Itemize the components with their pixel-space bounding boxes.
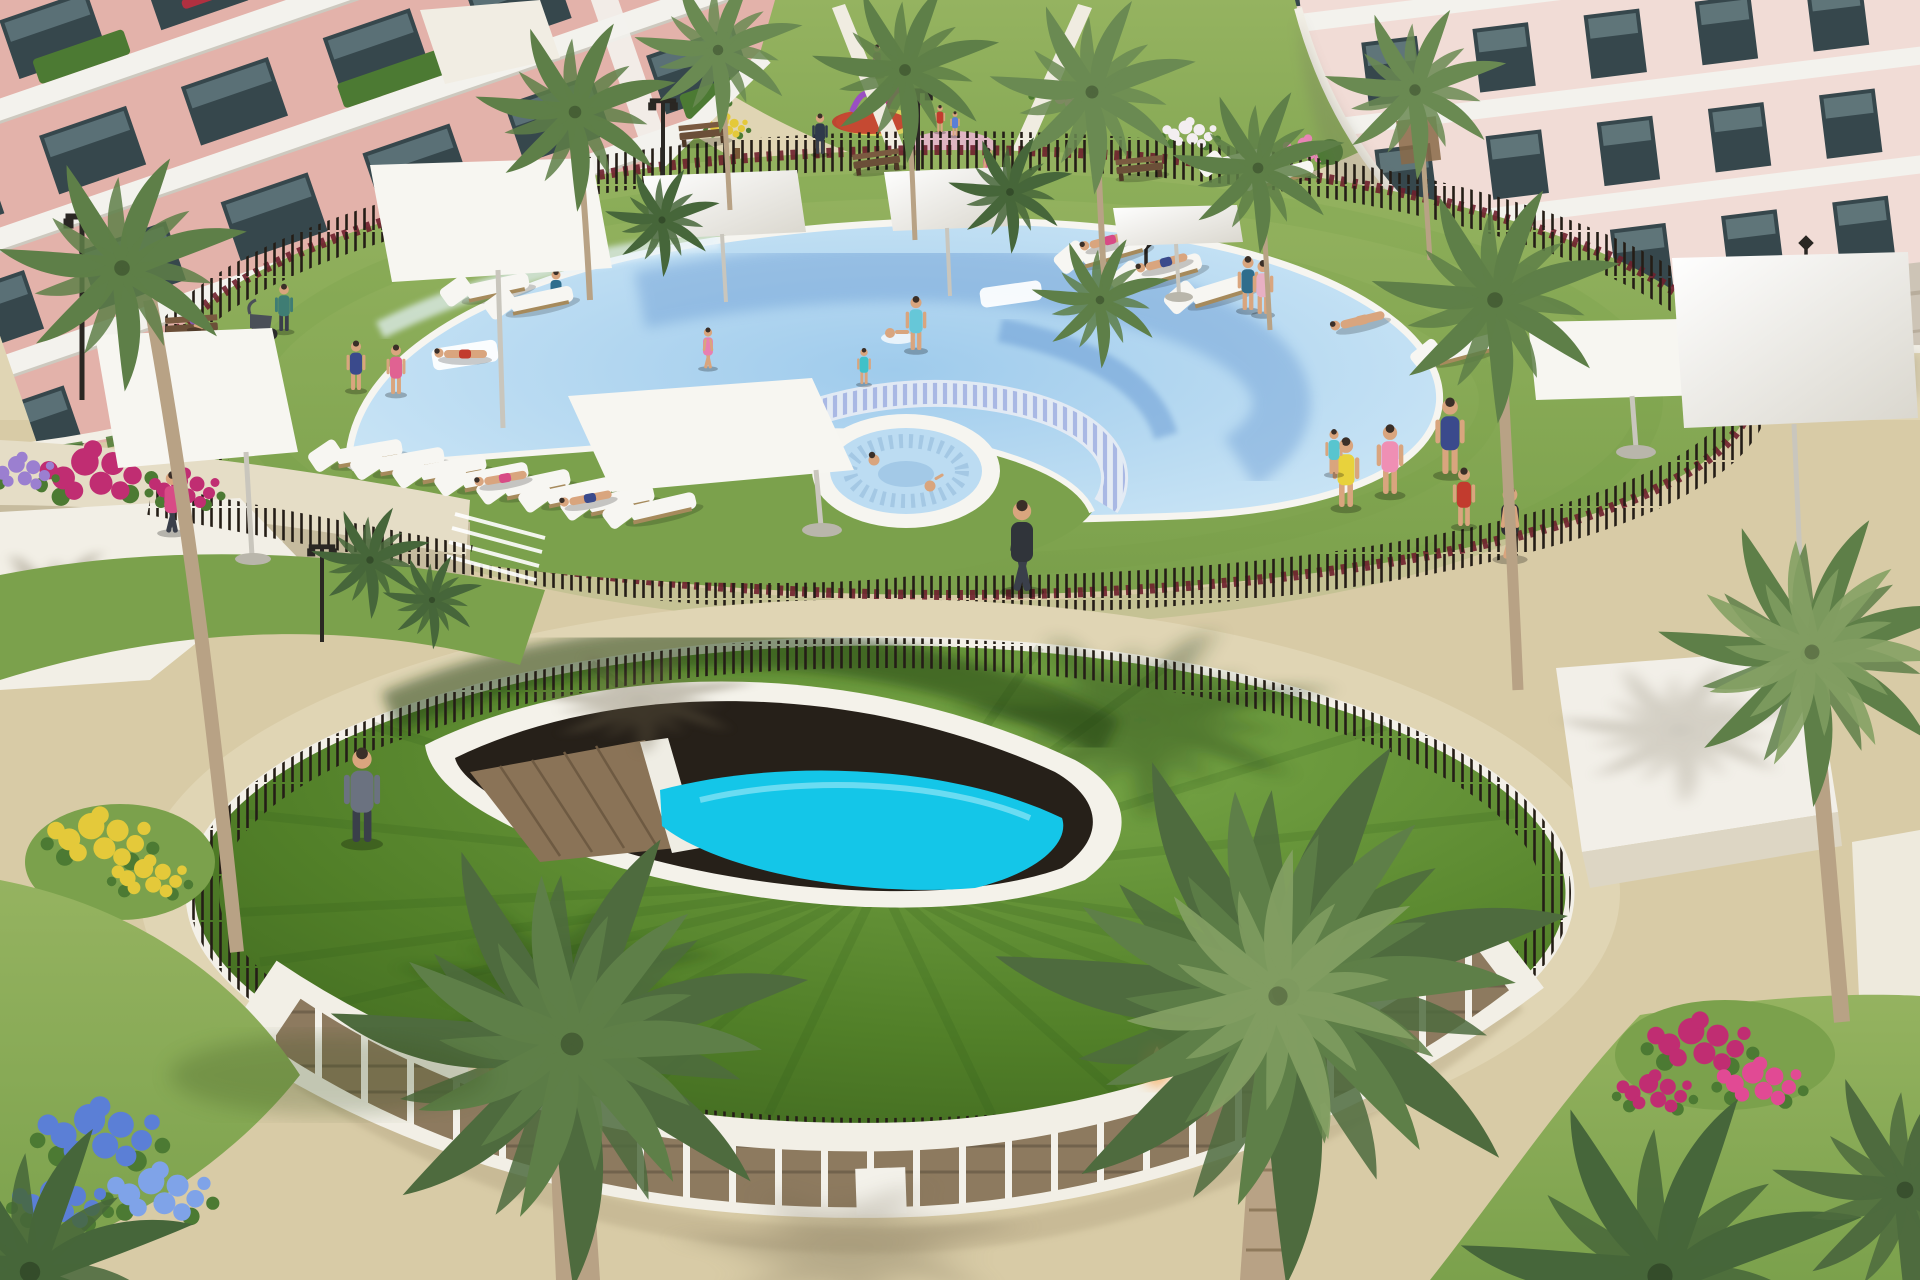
- jacuzzi-bather: [925, 481, 936, 492]
- scene-rendering: [0, 0, 1920, 1280]
- rendering-stage: [0, 0, 1920, 1280]
